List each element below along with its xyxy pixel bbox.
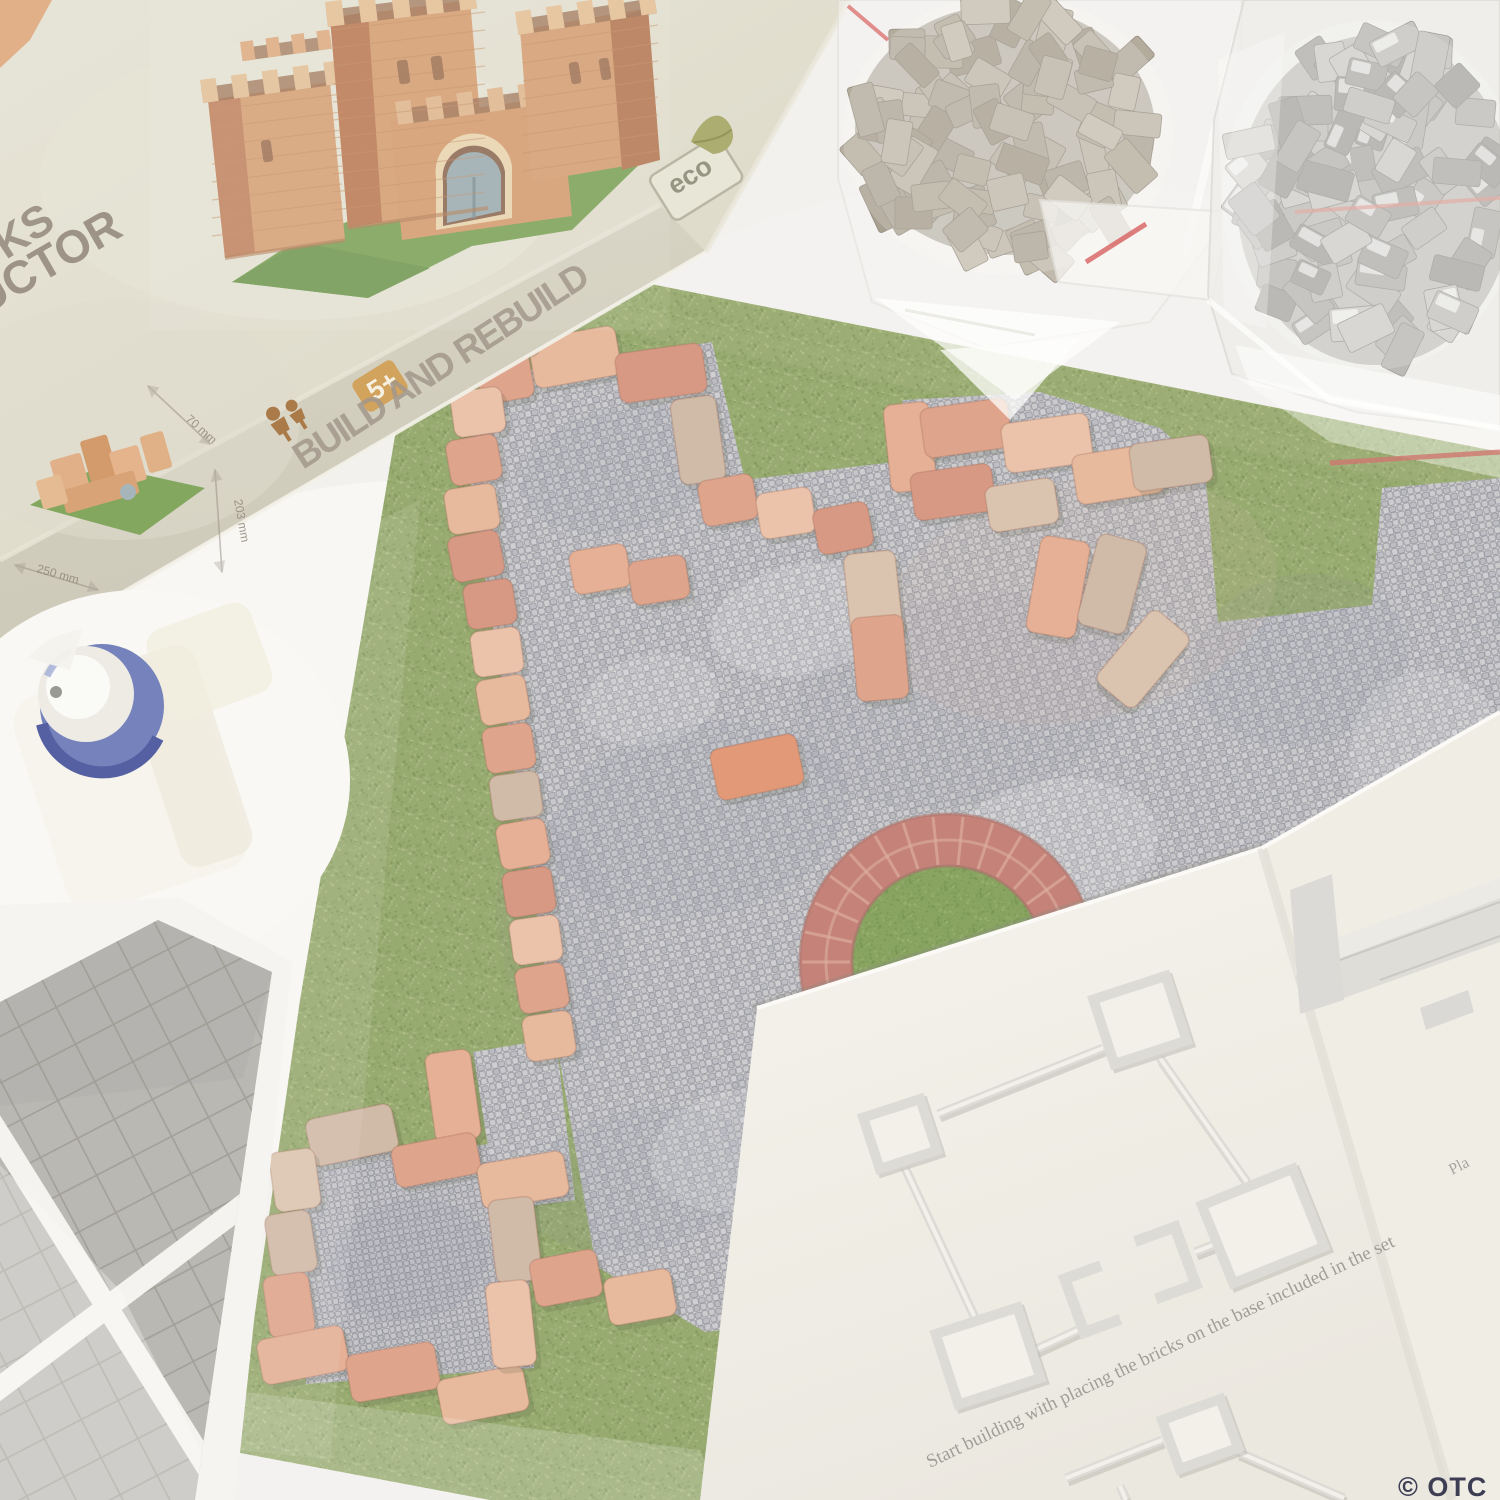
svg-text:© OTC: © OTC bbox=[1398, 1472, 1487, 1500]
